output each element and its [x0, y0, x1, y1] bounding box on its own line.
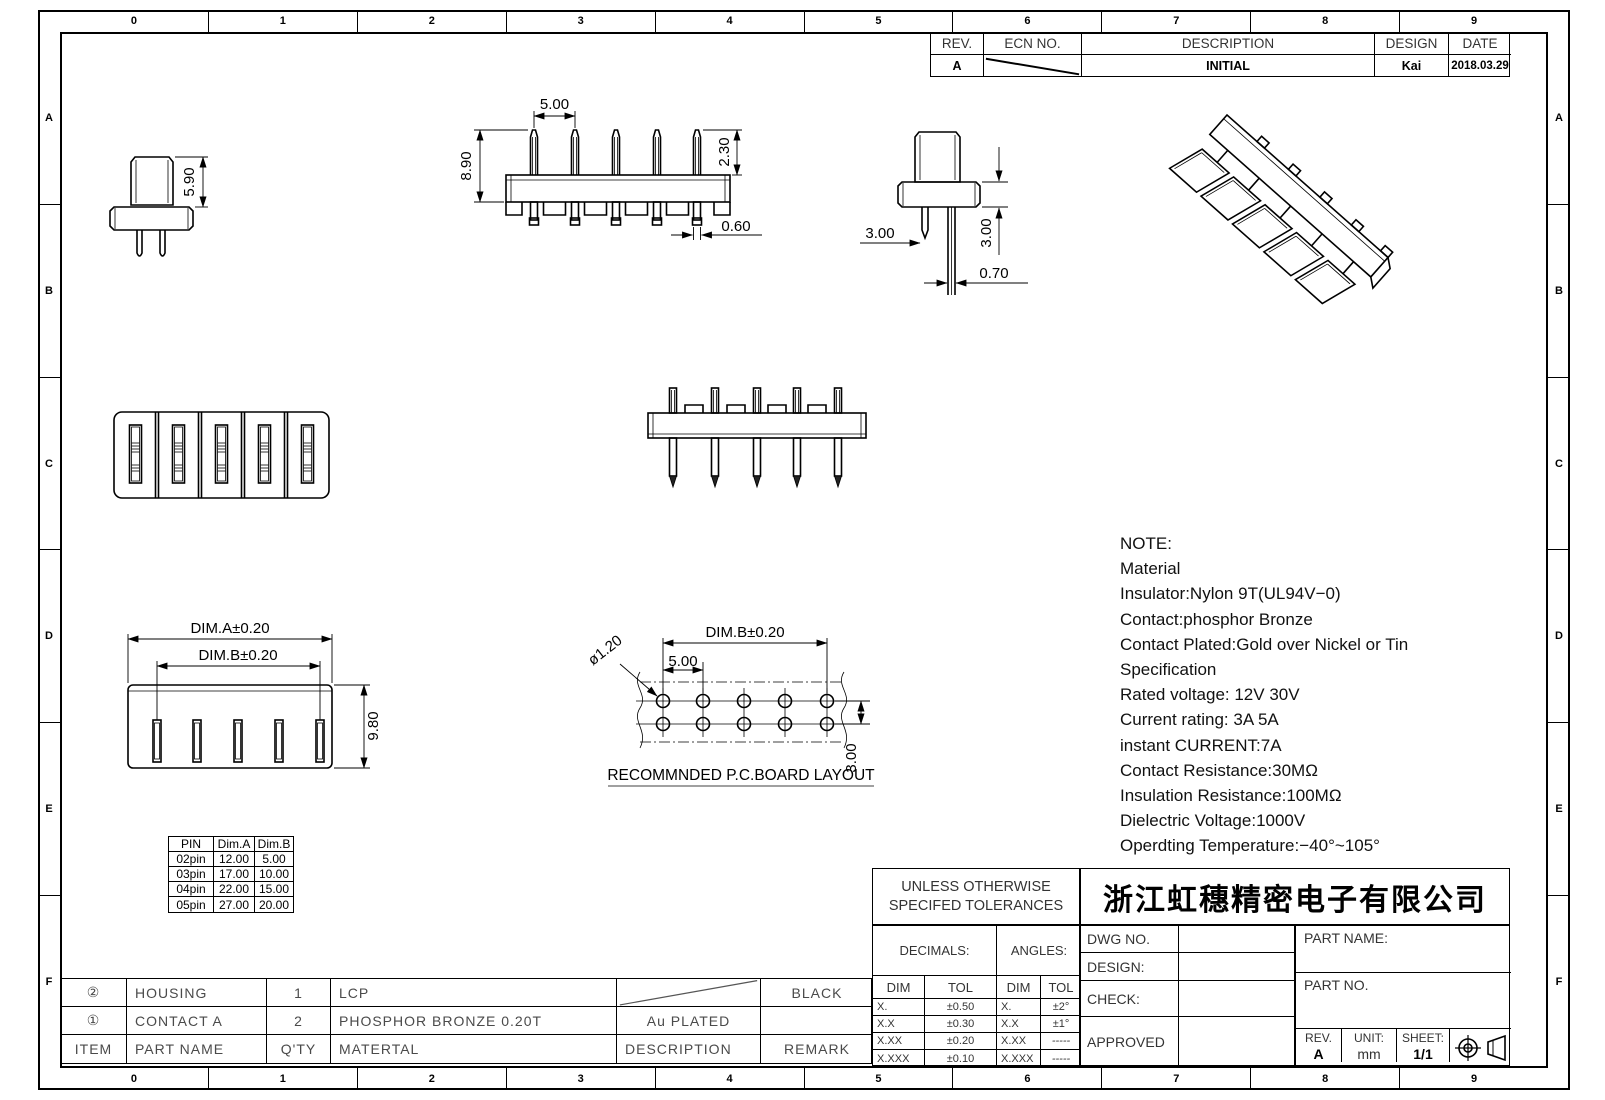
note-line: Specification [1120, 657, 1550, 682]
projection-symbol-icon [1452, 1031, 1510, 1065]
note-line: Current rating: 3A 5A [1120, 707, 1550, 732]
check-value [1179, 981, 1296, 1017]
pcb-dim-b: DIM.B±0.20 [705, 624, 784, 641]
pin-cell: 12.00 [214, 852, 255, 867]
bom-header-description: DESCRIPTION [617, 1035, 761, 1063]
tol-cell: X.XX [873, 1033, 925, 1050]
zone-row: E [38, 723, 60, 896]
view-pcb-layout: DIM.B±0.20 5.00 ø1.20 3.00 RECOMMNDED P.… [578, 598, 888, 803]
pin-cell: 17.00 [214, 867, 255, 882]
zone-col: 5 [805, 1068, 954, 1090]
sheet-value: 1/1 [1413, 1046, 1432, 1062]
tol-cell: X.XXX [997, 1050, 1041, 1067]
bom-header-part-name: PART NAME [127, 1035, 267, 1063]
tolerance-title: UNLESS OTHERWISE SPECIFED TOLERANCES [872, 868, 1080, 925]
zone-row: C [38, 378, 60, 551]
zone-col: 3 [507, 10, 656, 32]
design-header: DESIGN [1375, 32, 1449, 54]
zone-row: A [38, 32, 60, 205]
note-line: Contact Plated:Gold over Nickel or Tin [1120, 632, 1550, 657]
note-line: Dielectric Voltage:1000V [1120, 808, 1550, 833]
tol-cell: X. [997, 999, 1041, 1016]
tol-cell: ----- [1041, 1033, 1081, 1050]
part-block: PART NAME: PART NO. REV. A UNIT: mm SHEE… [1295, 925, 1510, 1066]
bom-material: PHOSPHOR BRONZE 0.20T [331, 1007, 617, 1035]
rev-value: A [1313, 1046, 1323, 1062]
zone-col: 7 [1102, 1068, 1251, 1090]
bom-table: ② HOUSING 1 LCP BLACK ① CONTACT A 2 PHOS… [60, 978, 872, 1064]
zone-col: 3 [507, 1068, 656, 1090]
description-value: INITIAL [1082, 54, 1375, 76]
dim-height-label: 9.80 [365, 711, 382, 740]
bom-header-qty: Q'TY [267, 1035, 331, 1063]
bom-header-remark: REMARK [761, 1035, 873, 1063]
ecn-header: ECN NO. [984, 32, 1082, 54]
zone-strip-bottom: 0 1 2 3 4 5 6 7 8 9 [60, 1068, 1548, 1090]
tol-cell: ±0.20 [925, 1033, 997, 1050]
zone-strip-top: 0 1 2 3 4 5 6 7 8 9 [60, 10, 1548, 32]
approved-label: APPROVED [1081, 1017, 1179, 1067]
dim-a-label: DIM.A±0.20 [190, 620, 269, 637]
note-line: NOTE: [1120, 531, 1550, 556]
pcb-hole-dia: ø1.20 [585, 632, 626, 669]
zone-col: 6 [953, 10, 1102, 32]
note-line: instant CURRENT:7A [1120, 733, 1550, 758]
approval-block: DWG NO. DESIGN: CHECK: APPROVED [1080, 925, 1295, 1066]
rev-header: REV. [931, 32, 984, 54]
design-label: DESIGN: [1081, 953, 1179, 981]
tol-cell: X.X [873, 1016, 925, 1033]
zone-row: D [1548, 550, 1570, 723]
bom-remark: BLACK [761, 979, 873, 1007]
part-name-label: PART NAME: [1296, 926, 1511, 973]
dim-housing-height: 5.90 [181, 167, 198, 196]
bom-header-item: ITEM [61, 1035, 127, 1063]
approved-value [1179, 1017, 1296, 1067]
zone-row: D [38, 550, 60, 723]
pin-cell: 20.00 [255, 897, 293, 912]
rev-label: REV. [1305, 1031, 1332, 1045]
dim-b-label: DIM.B±0.20 [198, 647, 277, 664]
tol-cell: ±0.30 [925, 1016, 997, 1033]
ecn-cell [984, 54, 1082, 76]
bom-item: ② [61, 979, 127, 1007]
zone-strip-right: A B C D E F [1548, 32, 1570, 1068]
zone-row: F [1548, 896, 1570, 1068]
zone-col: 9 [1400, 10, 1548, 32]
bom-header-material: MATERTAL [331, 1035, 617, 1063]
zone-strip-left: A B C D E F [38, 32, 60, 1068]
zone-row: E [1548, 723, 1570, 896]
dwg-no-value [1179, 926, 1296, 953]
zone-col: 4 [656, 10, 805, 32]
tol-cell: X.XXX [873, 1050, 925, 1067]
iso-contacts [1170, 129, 1366, 311]
date-header: DATE [1449, 32, 1511, 54]
tol-cell: ±0.10 [925, 1050, 997, 1067]
bom-item: ① [61, 1007, 127, 1035]
tol-cell: X.XX [997, 1033, 1041, 1050]
pin-cell: 04pin [169, 882, 214, 897]
dimb-col-header: Dim.B [255, 837, 293, 852]
dim-pin-top: 2.30 [716, 137, 733, 166]
sheet-cell: SHEET: 1/1 [1397, 1029, 1450, 1062]
note-line: Contact Resistance:30MΩ [1120, 758, 1550, 783]
unit-label: UNIT: [1354, 1031, 1384, 1045]
pin-dimension-table: PIN Dim.A Dim.B 02pin 12.00 5.00 03pin 1… [168, 836, 294, 913]
dim-tail-length: 3.00 [978, 218, 995, 247]
zone-row: B [1548, 205, 1570, 378]
dwg-no-label: DWG NO. [1081, 926, 1179, 953]
rev-unit-sheet-row: REV. A UNIT: mm SHEET: 1/1 [1296, 1029, 1511, 1067]
zone-row: B [38, 205, 60, 378]
note-line: Operdting Temperature:−40°~105° [1120, 833, 1550, 858]
view-side-b: 3.00 3.00 0.70 [838, 105, 1043, 310]
zone-col: 0 [60, 10, 209, 32]
bom-part-name: CONTACT A [127, 1007, 267, 1035]
check-label: CHECK: [1081, 981, 1179, 1017]
view-side-a: 5.90 [90, 120, 340, 275]
diagonal-line [617, 979, 760, 1006]
bom-description: Au PLATED [617, 1007, 761, 1035]
date-value: 2018.03.29 [1449, 54, 1511, 76]
bottom-pins [530, 202, 702, 225]
pcb-pitch: 5.00 [668, 653, 697, 670]
pin-cell: 5.00 [255, 852, 293, 867]
dima-col-header: Dim.A [214, 837, 255, 852]
pin-cell: 22.00 [214, 882, 255, 897]
drawing-sheet: 0 1 2 3 4 5 6 7 8 9 0 1 2 3 4 5 6 7 8 9 … [0, 0, 1605, 1100]
zone-row: C [1548, 378, 1570, 551]
sheet-label: SHEET: [1402, 1031, 1444, 1045]
view-bottom-dim: DIM.A±0.20 DIM.B±0.20 9.80 [112, 608, 412, 793]
zone-col: 2 [358, 1068, 507, 1090]
bom-description [617, 979, 761, 1007]
tol-cell: X.X [997, 1016, 1041, 1033]
bom-qty: 2 [267, 1007, 331, 1035]
zone-col: 1 [209, 10, 358, 32]
note-line: Insulation Resistance:100MΩ [1120, 783, 1550, 808]
dim-pin-width-b: 0.70 [979, 265, 1008, 282]
note-line: Rated voltage: 12V 30V [1120, 682, 1550, 707]
pin-cell: 02pin [169, 852, 214, 867]
dim-pin-width: 0.60 [721, 218, 750, 235]
angles-label: ANGLES: [997, 926, 1081, 976]
diagonal-line [984, 55, 1081, 76]
pcb-caption: RECOMMNDED P.C.BOARD LAYOUT [607, 767, 875, 784]
view-front-b [622, 368, 872, 498]
zone-col: 9 [1400, 1068, 1548, 1090]
dim-pin-length: 3.00 [865, 225, 894, 242]
pin-cell: 15.00 [255, 882, 293, 897]
projection-symbol-cell [1450, 1029, 1511, 1065]
part-no-label: PART NO. [1296, 973, 1511, 1029]
pin-cell: 05pin [169, 897, 214, 912]
pcb-holes [657, 688, 834, 737]
revision-table: REV. ECN NO. DESCRIPTION DESIGN DATE A I… [930, 32, 1510, 77]
top-pins [670, 388, 842, 413]
bom-remark [761, 1007, 873, 1035]
tol-cell: X. [873, 999, 925, 1016]
dim-total-height: 8.90 [458, 151, 475, 180]
view-isometric [1165, 85, 1440, 320]
tolerance-title-line1: UNLESS OTHERWISE [901, 878, 1051, 897]
zone-col: 6 [953, 1068, 1102, 1090]
zone-col: 8 [1251, 1068, 1400, 1090]
design-value: Kai [1375, 54, 1449, 76]
design-value [1179, 953, 1296, 981]
top-pins [531, 130, 701, 175]
tol-header: TOL [1041, 976, 1081, 999]
bottom-pins [670, 438, 842, 487]
zone-row: A [1548, 32, 1570, 205]
unit-cell: UNIT: mm [1342, 1029, 1397, 1062]
tol-cell: ±2° [1041, 999, 1081, 1016]
unit-value: mm [1357, 1046, 1380, 1062]
tol-header: TOL [925, 976, 997, 999]
zone-row: F [38, 896, 60, 1068]
view-top [108, 403, 343, 508]
zone-col: 2 [358, 10, 507, 32]
dim-header: DIM [873, 976, 925, 999]
slots [153, 720, 324, 762]
zone-col: 1 [209, 1068, 358, 1090]
view-front-a: 5.00 8.90 2.30 0.60 [440, 85, 785, 270]
bom-material: LCP [331, 979, 617, 1007]
tol-cell: ±0.50 [925, 999, 997, 1016]
pin-col-header: PIN [169, 837, 214, 852]
note-line: Insulator:Nylon 9T(UL94V−0) [1120, 581, 1550, 606]
description-header: DESCRIPTION [1082, 32, 1375, 54]
tolerance-title-line2: SPECIFED TOLERANCES [889, 897, 1063, 916]
bom-qty: 1 [267, 979, 331, 1007]
contact-slots [130, 425, 314, 483]
company-name: 浙江虹穗精密电子有限公司 [1080, 868, 1510, 925]
rev-value: A [931, 54, 984, 76]
zone-col: 4 [656, 1068, 805, 1090]
zone-col: 7 [1102, 10, 1251, 32]
tolerance-table: DECIMALS: ANGLES: DIM TOL DIM TOL X. ±0.… [872, 925, 1080, 1066]
dim-pitch: 5.00 [540, 96, 569, 113]
bom-part-name: HOUSING [127, 979, 267, 1007]
zone-col: 8 [1251, 10, 1400, 32]
note-line: Material [1120, 556, 1550, 581]
pin-cell: 03pin [169, 867, 214, 882]
tol-cell: ----- [1041, 1050, 1081, 1067]
dim-header: DIM [997, 976, 1041, 999]
pin-cell: 10.00 [255, 867, 293, 882]
tol-cell: ±1° [1041, 1016, 1081, 1033]
zone-col: 0 [60, 1068, 209, 1090]
note-line: Contact:phosphor Bronze [1120, 607, 1550, 632]
note-block: NOTE: Material Insulator:Nylon 9T(UL94V−… [1120, 531, 1550, 859]
pin-cell: 27.00 [214, 897, 255, 912]
rev-cell: REV. A [1296, 1029, 1342, 1062]
decimals-label: DECIMALS: [873, 926, 997, 976]
zone-col: 5 [805, 10, 954, 32]
